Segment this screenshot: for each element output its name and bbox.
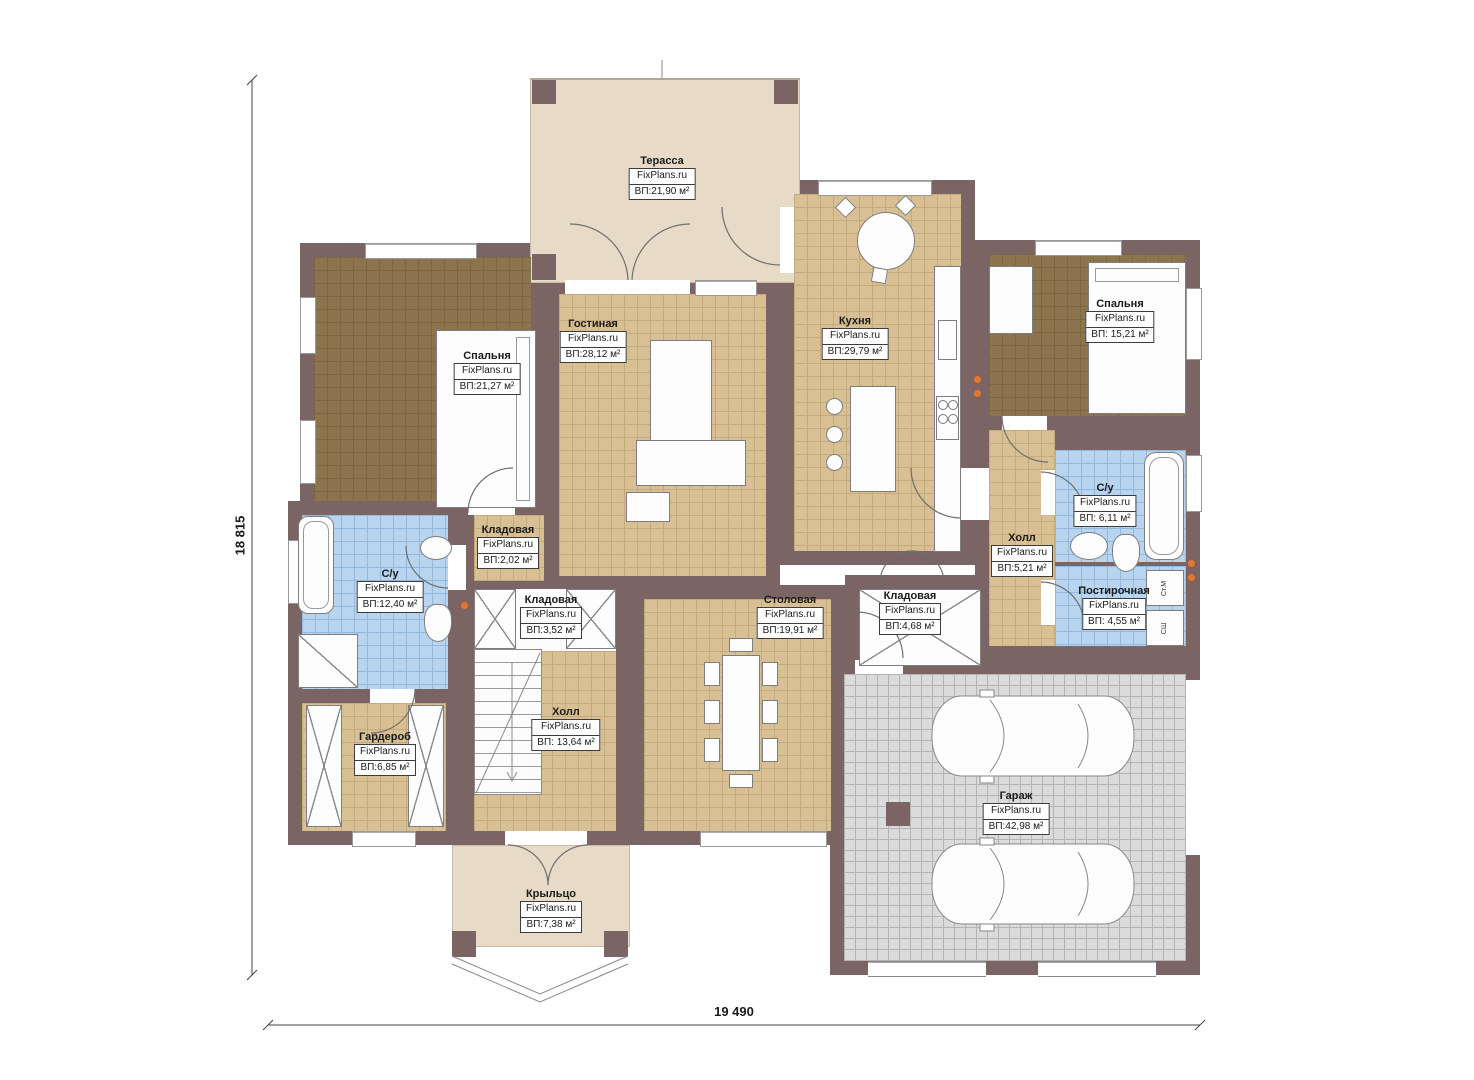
window [1035,240,1122,256]
window [700,831,827,847]
kitchen-table [857,212,915,270]
room-brand: FixPlans.ru [521,608,581,624]
window [1186,288,1202,360]
bar-stool [826,426,843,443]
coffee-table [626,492,670,522]
terrace-pillar [774,80,798,104]
room-area: ВП:7,38 м² [521,918,581,933]
toilet [1112,534,1140,572]
bathtub [1144,452,1184,560]
door-opening [961,468,989,520]
window [365,243,477,259]
washer: Ст.М [1146,570,1184,606]
room-area: ВП:3,52 м² [521,624,581,639]
chair [871,267,888,284]
room-brand: FixPlans.ru [532,720,599,736]
room-label-terrace: Терасса FixPlans.ru ВП:21,90 м² [629,155,696,200]
window [352,831,416,847]
room-name: Гардероб [354,731,416,743]
sink [420,536,452,560]
toilet [424,604,452,642]
room-label-hall-main: Холл FixPlans.ru ВП: 13,64 м² [531,706,600,751]
door-opening [370,689,415,703]
chair [729,638,753,652]
garage-side-opening [1186,680,1200,855]
dimension-width: 19 490 [694,1004,774,1019]
room-brand: FixPlans.ru [1083,599,1145,615]
room-label-storage-mid: Кладовая FixPlans.ru ВП:4,68 м² [879,590,941,635]
socket-marker [1188,560,1195,567]
room-label-storage-small: Кладовая FixPlans.ru ВП:2,02 м² [477,524,539,569]
window [300,297,316,354]
room-area: ВП:4,68 м² [880,620,940,635]
room-name: Кладовая [477,524,539,536]
room-name: Крыльцо [520,888,582,900]
terrace-pillar [532,254,556,280]
window [300,420,316,484]
room-name: Кладовая [520,594,582,606]
washer-label: Ст.М [1161,580,1168,595]
room-name: Спальня [454,350,521,362]
stove-burner [948,414,958,424]
room-label-kitchen: Кухня FixPlans.ru ВП:29,79 м² [822,315,889,360]
room-name: Холл [531,706,600,718]
room-brand: FixPlans.ru [358,582,423,598]
chair [704,662,720,686]
room-label-storage-stairs: Кладовая FixPlans.ru ВП:3,52 м² [520,594,582,639]
door-opening [565,280,690,294]
garage-door [868,961,986,977]
room-brand: FixPlans.ru [1074,496,1135,512]
door-opening [1002,416,1047,430]
room-label-living: Гостиная FixPlans.ru ВП:28,12 м² [560,318,627,363]
room-brand: FixPlans.ru [984,804,1049,820]
room-brand: FixPlans.ru [521,902,581,918]
entrance-opening [505,831,587,845]
room-area: ВП:5,21 м² [992,562,1052,577]
window [1186,455,1202,512]
room-label-bedroom-left: Спальня FixPlans.ru ВП:21,27 м² [454,350,521,395]
closet-unit [474,589,516,649]
wardrobe-unit [306,705,342,827]
room-area: ВП: 13,64 м² [532,736,599,751]
floor-plan: Ст.М СШ [0,0,1474,1080]
dining-table [722,655,760,771]
socket-marker [461,602,468,609]
dryer-label: СШ [1161,622,1168,633]
door-opening [780,207,794,273]
room-brand: FixPlans.ru [1086,312,1153,328]
room-name: Холл [991,532,1053,544]
room-brand: FixPlans.ru [992,546,1052,562]
room-label-bathroom-left: С/у FixPlans.ru ВП:12,40 м² [357,568,424,613]
stove-burner [948,400,958,410]
chair [762,738,778,762]
chair [762,662,778,686]
room-label-garage: Гараж FixPlans.ru ВП:42,98 м² [983,790,1050,835]
room-area: ВП:29,79 м² [823,345,888,360]
room-name: С/у [1073,482,1136,494]
room-name: Постирочная [1078,585,1149,597]
room-area: ВП:12,40 м² [358,598,423,613]
room-name: Гараж [983,790,1050,802]
room-name: Спальня [1085,298,1154,310]
room-area: ВП:2,02 м² [478,554,538,569]
sofa [636,440,746,486]
dryer: СШ [1146,610,1184,646]
terrace-pillar [532,80,556,104]
room-name: Кладовая [879,590,941,602]
socket-marker [974,390,981,397]
room-label-dining: Столовая FixPlans.ru ВП:19,91 м² [757,594,824,639]
room-area: ВП: 4,55 м² [1083,615,1145,630]
room-brand: FixPlans.ru [823,329,888,345]
chair [762,700,778,724]
room-label-hall-right: Холл FixPlans.ru ВП:5,21 м² [991,532,1053,577]
car [928,836,1140,933]
room-area: ВП:21,27 м² [455,380,520,395]
room-brand: FixPlans.ru [561,332,626,348]
room-area: ВП: 6,11 м² [1074,512,1135,527]
socket-marker [974,376,981,383]
room-brand: FixPlans.ru [455,364,520,380]
window [695,280,757,296]
closet [989,266,1033,334]
room-brand: FixPlans.ru [355,745,415,761]
car [928,688,1140,785]
room-label-wardrobe: Гардероб FixPlans.ru ВП:6,85 м² [354,731,416,776]
room-name: С/у [357,568,424,580]
room-area: ВП:42,98 м² [984,820,1049,835]
room-area: ВП:28,12 м² [561,348,626,363]
room-area: ВП:19,91 м² [758,624,823,639]
room-brand: FixPlans.ru [478,538,538,554]
room-label-bedroom-right: Спальня FixPlans.ru ВП: 15,21 м² [1085,298,1154,343]
bathtub-rim [1149,457,1179,555]
room-brand: FixPlans.ru [758,608,823,624]
socket-marker [1188,574,1195,581]
bathtub-rim [303,521,329,609]
door-opening [1041,470,1055,515]
window [818,180,932,196]
bar-stool [826,398,843,415]
kitchen-island [850,386,896,492]
door-opening [1041,580,1055,625]
room-brand: FixPlans.ru [630,169,695,185]
chair [704,700,720,724]
chair [704,738,720,762]
porch-pillar [452,931,476,957]
room-name: Терасса [629,155,696,167]
porch-pillar [604,931,628,957]
stove-burner [938,414,948,424]
sink [1070,532,1108,560]
chair [729,774,753,788]
room-name: Гостиная [560,318,627,330]
stove-burner [938,400,948,410]
room-label-bathroom-right: С/у FixPlans.ru ВП: 6,11 м² [1073,482,1136,527]
room-area: ВП:6,85 м² [355,761,415,776]
bar-stool [826,454,843,471]
garage-door [1038,961,1156,977]
shower [298,634,358,688]
room-label-porch: Крыльцо FixPlans.ru ВП:7,38 м² [520,888,582,933]
room-area: ВП:21,90 м² [630,185,695,200]
room-area: ВП: 15,21 м² [1086,328,1153,343]
dimension-height: 18 815 [233,496,248,576]
garage-column [886,802,910,826]
kitchen-sink [938,320,957,360]
room-name: Кухня [822,315,889,327]
room-name: Столовая [757,594,824,606]
room-label-laundry: Постирочная FixPlans.ru ВП: 4,55 м² [1078,585,1149,630]
room-brand: FixPlans.ru [880,604,940,620]
bathtub [298,516,334,614]
